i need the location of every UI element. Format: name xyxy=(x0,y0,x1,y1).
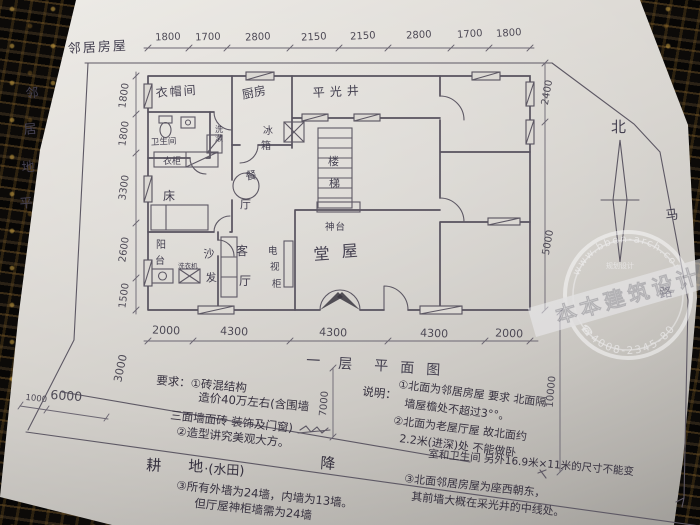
room-label-lightwell: 平光井 xyxy=(312,83,364,100)
room-label-kitchen: 厨房 xyxy=(241,82,268,102)
wardrobe-label: 衣柜 xyxy=(163,155,181,167)
living-label-char: 厅 xyxy=(239,274,251,288)
watermark-stamp: www.bben-arch.com ☎4008-2345-80 规划设计 本本建… xyxy=(528,232,700,358)
washer-label: 洗衣机 xyxy=(178,261,198,270)
sofa-label-char: 发 xyxy=(205,270,217,285)
dim-left-1: 1800 xyxy=(117,120,131,147)
watermark-phone: ☎4008-2345-80 xyxy=(578,322,678,357)
photo-background: 邻居房屋 邻 居 地 平 北 马 路 衣帽间 厨房 平光井 卫生间 洗 漱 衣柜… xyxy=(0,0,700,525)
notes-heading: 说明： xyxy=(362,384,398,402)
requirement-line: 造价40万左右(含围墙 xyxy=(198,390,310,414)
site-drop-char: 降 xyxy=(320,454,336,473)
dim-site-left-gap: 3000 xyxy=(111,353,130,383)
site-paddy-label: ·(水田) xyxy=(204,462,245,479)
crossed-out-scribble xyxy=(298,426,330,433)
windows xyxy=(144,72,534,314)
dim-site-front: 7000 xyxy=(318,391,331,417)
living-label-char: 客 xyxy=(236,243,248,258)
bed-label: 床 xyxy=(163,189,175,203)
dim-bottom-2: 4300 xyxy=(319,326,347,340)
dim-site-right: 10000 xyxy=(545,375,559,408)
room-label-bathroom: 卫生间 xyxy=(151,136,177,148)
dim-top-5: 2800 xyxy=(406,29,432,41)
title-char: 平 xyxy=(374,358,389,375)
dim-site-left-a: 1000 xyxy=(25,393,48,405)
dim-top-1: 1700 xyxy=(195,32,221,44)
neighbor-ground-char: 平 xyxy=(19,196,33,212)
site-field-char: 地 xyxy=(188,457,204,476)
dim-top-0: 1800 xyxy=(155,32,181,44)
dim-left-4: 1500 xyxy=(117,282,131,309)
tv-cabinet-shape xyxy=(284,241,293,287)
dim-bottom-3: 4300 xyxy=(420,327,448,341)
laundry-sink xyxy=(152,269,173,283)
dim-top-7: 1800 xyxy=(496,27,522,40)
tv-cabinet-label-char: 柜 xyxy=(272,278,282,290)
road-char: 马 xyxy=(664,207,679,224)
watermark-small-label: 规划设计 xyxy=(606,261,634,270)
dim-bottom-1: 4300 xyxy=(220,325,248,339)
hall-label-char: 屋 xyxy=(341,241,358,261)
sofa-shape xyxy=(221,237,237,297)
balcony-label-char: 阳 xyxy=(156,239,166,251)
sink-shape xyxy=(181,117,195,128)
dim-left-3: 2600 xyxy=(117,236,131,263)
title-char: 图 xyxy=(426,362,441,379)
washstand-label-char: 洗 xyxy=(215,124,223,134)
tv-cabinet-label-char: 视 xyxy=(270,261,280,273)
neighbor-ground-char: 邻 xyxy=(25,86,39,102)
sofa-label-char: 沙 xyxy=(203,247,215,261)
dining-label-char: 厅 xyxy=(240,198,251,211)
altar-label: 神台 xyxy=(325,221,346,233)
room-label-cloakroom: 衣帽间 xyxy=(155,82,198,100)
title-char: 一 xyxy=(306,353,321,370)
washstand-label-char: 漱 xyxy=(215,133,223,143)
dim-bottom-0: 2000 xyxy=(152,324,180,338)
dim-right-1: 5000 xyxy=(541,229,556,256)
hall-label-char: 堂 xyxy=(313,244,330,264)
title-char: 层 xyxy=(338,356,353,373)
dining-label-char: 餐 xyxy=(244,168,257,183)
neighbor-ground-char: 居 xyxy=(23,122,37,138)
dim-left-2: 3300 xyxy=(117,174,131,201)
dim-right-0: 2400 xyxy=(540,79,555,106)
plan-title: 一 层 平 面 图 xyxy=(306,353,441,379)
dim-top-4: 2150 xyxy=(350,30,376,42)
note-line: 室和卫生间 另外16.9米×11米的尺寸不能变 xyxy=(428,447,635,478)
neighbor-house-label: 邻居房屋 xyxy=(67,38,128,57)
dim-bottom-4: 2000 xyxy=(495,327,523,341)
dim-top-2: 2800 xyxy=(245,31,271,43)
north-label: 北 xyxy=(611,118,626,136)
stairs-label-char: 楼 xyxy=(328,154,339,168)
title-char: 面 xyxy=(400,360,415,377)
fridge-label-char: 冰 xyxy=(263,124,273,137)
site-field-char: 耕 xyxy=(146,456,162,475)
neighbor-ground-char: 地 xyxy=(21,160,35,176)
bed-shape xyxy=(151,205,208,230)
dim-left-0: 1800 xyxy=(117,82,131,109)
tv-cabinet-label-char: 电 xyxy=(268,245,278,257)
dim-top-6: 1700 xyxy=(457,28,483,41)
floor-plan-sketch: 邻居房屋 邻 居 地 平 北 马 路 衣帽间 厨房 平光井 卫生间 洗 漱 衣柜… xyxy=(0,0,700,525)
fridge-label-char: 箱 xyxy=(261,139,271,152)
dim-site-left-b: 6000 xyxy=(50,387,83,404)
balcony-label-char: 台 xyxy=(155,254,165,267)
toilet-bowl xyxy=(160,123,171,138)
stairs-label-char: 梯 xyxy=(329,177,340,190)
dim-top-3: 2150 xyxy=(301,31,327,43)
